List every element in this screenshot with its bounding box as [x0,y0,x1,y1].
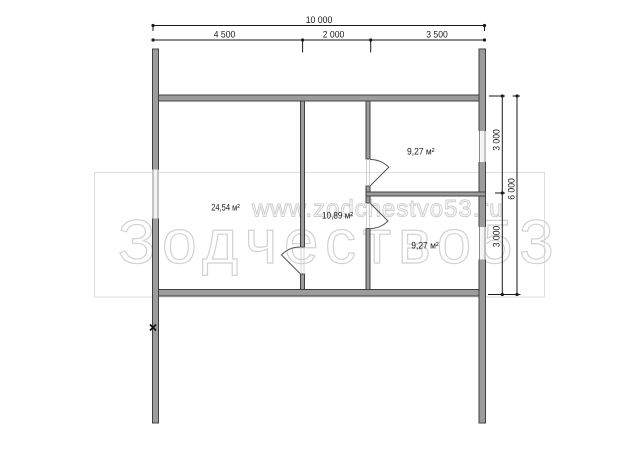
svg-text:9,27 м²: 9,27 м² [407,146,435,157]
svg-text:6 000: 6 000 [507,178,518,200]
svg-text:9,27 м²: 9,27 м² [411,241,439,252]
svg-text:3 000: 3 000 [492,226,503,248]
svg-text:24,54 м²: 24,54 м² [211,203,240,214]
svg-text:10,89 м²: 10,89 м² [322,211,353,222]
svg-text:2 000: 2 000 [323,30,345,41]
svg-text:4 500: 4 500 [214,30,236,41]
svg-text:10 000: 10 000 [306,15,333,26]
svg-text:3 000: 3 000 [492,129,503,151]
svg-text:3 500: 3 500 [426,30,448,41]
